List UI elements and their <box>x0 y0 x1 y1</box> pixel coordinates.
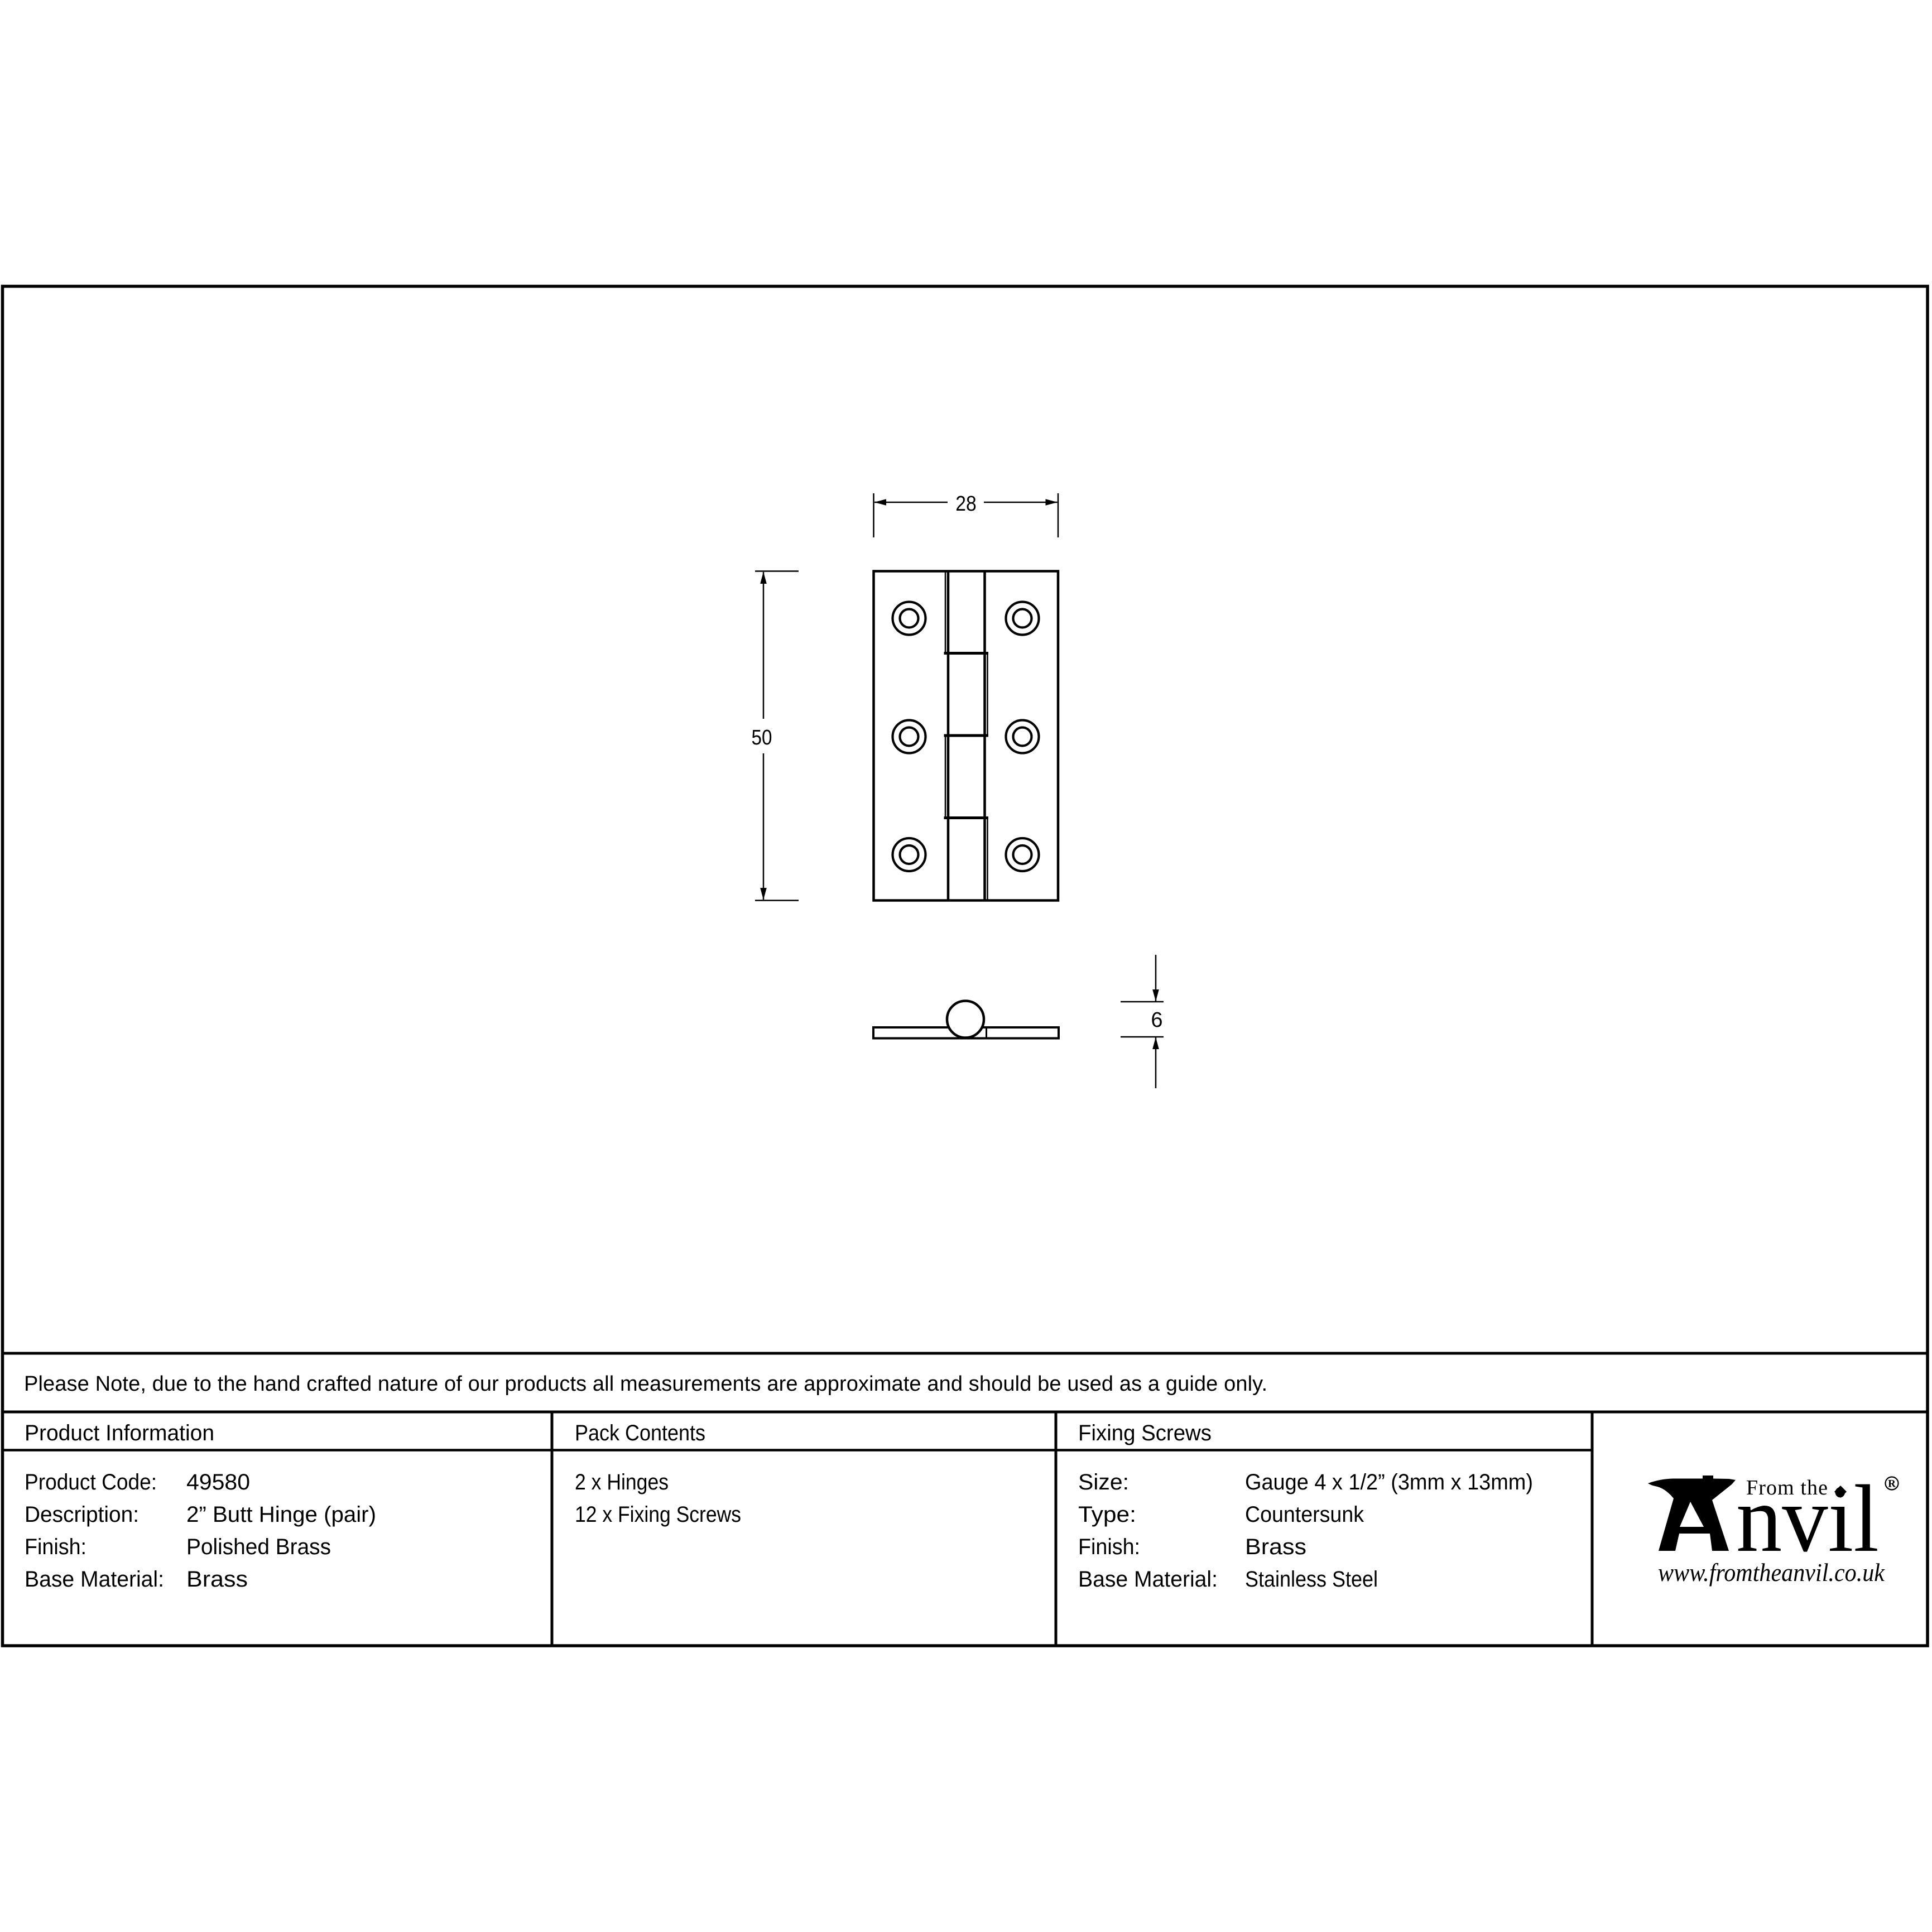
svg-text:Pack Contents: Pack Contents <box>575 1421 705 1445</box>
svg-text:Product Information: Product Information <box>25 1421 214 1445</box>
svg-text:Stainless Steel: Stainless Steel <box>1245 1567 1378 1592</box>
svg-text:www.fromtheanvil.co.uk: www.fromtheanvil.co.uk <box>1658 1558 1885 1587</box>
svg-text:Brass: Brass <box>186 1567 248 1592</box>
svg-text:Finish:: Finish: <box>25 1535 86 1559</box>
svg-text:28: 28 <box>955 492 977 516</box>
svg-text:Gauge 4 x 1/2” (3mm x 13mm): Gauge 4 x 1/2” (3mm x 13mm) <box>1245 1470 1533 1494</box>
svg-text:Base Material:: Base Material: <box>1078 1567 1218 1592</box>
svg-text:Brass: Brass <box>1245 1535 1306 1559</box>
svg-text:49580: 49580 <box>186 1470 250 1494</box>
svg-text:Polished Brass: Polished Brass <box>186 1535 331 1559</box>
svg-text:2” Butt Hinge (pair): 2” Butt Hinge (pair) <box>186 1502 376 1527</box>
svg-text:12 x Fixing Screws: 12 x Fixing Screws <box>575 1502 741 1527</box>
svg-text:50: 50 <box>752 726 772 749</box>
svg-text:Product Code:: Product Code: <box>25 1470 157 1494</box>
svg-text:Countersunk: Countersunk <box>1245 1502 1364 1527</box>
svg-text:Fixing Screws: Fixing Screws <box>1078 1421 1212 1445</box>
svg-text:Base Material:: Base Material: <box>25 1567 164 1592</box>
svg-text:2 x Hinges: 2 x Hinges <box>575 1470 669 1494</box>
svg-text:Finish:: Finish: <box>1078 1535 1140 1559</box>
svg-text:nvil: nvil <box>1736 1466 1879 1572</box>
svg-text:6: 6 <box>1151 1008 1162 1032</box>
svg-text:Type:: Type: <box>1078 1502 1136 1527</box>
svg-text:Description:: Description: <box>25 1502 139 1527</box>
svg-text:R: R <box>1888 1478 1896 1490</box>
svg-text:Please Note, due to the hand c: Please Note, due to the hand crafted nat… <box>24 1372 1267 1396</box>
svg-text:Size:: Size: <box>1078 1470 1129 1494</box>
